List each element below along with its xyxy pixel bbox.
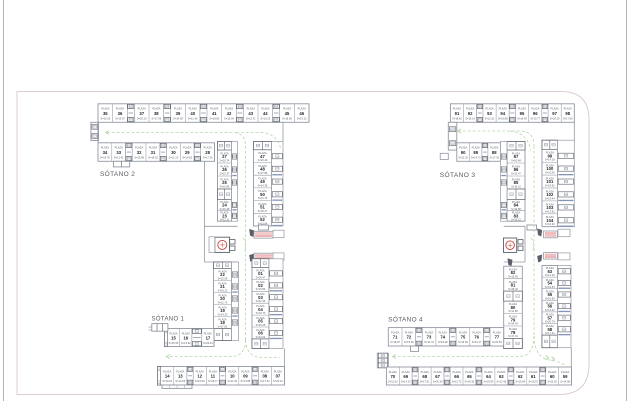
svg-text:S=14.68: S=14.68 <box>560 379 570 383</box>
svg-text:19: 19 <box>220 308 225 313</box>
svg-text:99: 99 <box>547 153 552 158</box>
svg-text:15: 15 <box>171 335 176 340</box>
svg-text:S=11.15: S=11.15 <box>169 156 179 160</box>
svg-text:S=15.69: S=15.69 <box>508 274 518 278</box>
svg-text:97: 97 <box>552 111 557 116</box>
svg-text:102: 102 <box>546 192 554 197</box>
svg-text:45: 45 <box>285 111 290 116</box>
svg-text:S=14.88: S=14.88 <box>241 379 251 383</box>
svg-text:29: 29 <box>185 150 190 155</box>
svg-text:11: 11 <box>211 374 216 379</box>
svg-text:S=20.14: S=20.14 <box>273 379 283 383</box>
svg-text:74: 74 <box>440 335 445 340</box>
svg-text:71: 71 <box>393 335 398 340</box>
svg-text:14: 14 <box>165 374 170 379</box>
svg-text:S=14.18: S=14.18 <box>545 158 555 162</box>
svg-text:89: 89 <box>473 150 478 155</box>
svg-text:S=16.90: S=16.90 <box>545 296 555 300</box>
svg-text:S=18.82: S=18.82 <box>209 117 219 121</box>
svg-text:S=15.84: S=15.84 <box>256 287 266 291</box>
svg-text:S=13.47: S=13.47 <box>511 171 521 175</box>
svg-text:13: 13 <box>178 374 183 379</box>
svg-text:S=15.29: S=15.29 <box>195 379 205 383</box>
svg-text:17: 17 <box>206 335 211 340</box>
svg-text:S=18.47: S=18.47 <box>256 275 266 279</box>
svg-text:S=15.89: S=15.89 <box>134 156 144 160</box>
svg-text:S=13.92: S=13.92 <box>181 341 191 345</box>
svg-text:57: 57 <box>547 315 552 320</box>
svg-text:S=17.91: S=17.91 <box>508 334 518 338</box>
svg-text:S=12.46: S=12.46 <box>496 379 506 383</box>
svg-text:16: 16 <box>183 335 188 340</box>
svg-text:SÓTANO 2: SÓTANO 2 <box>100 169 135 178</box>
svg-text:36: 36 <box>118 111 123 116</box>
svg-text:S=15.34: S=15.34 <box>224 117 234 121</box>
svg-text:49: 49 <box>260 179 265 184</box>
svg-text:32: 32 <box>137 150 142 155</box>
svg-text:S=19.83: S=19.83 <box>484 379 494 383</box>
svg-text:64: 64 <box>486 374 491 379</box>
svg-text:S=18.77: S=18.77 <box>208 379 218 383</box>
svg-text:60: 60 <box>550 374 555 379</box>
svg-text:98: 98 <box>565 111 570 116</box>
svg-text:33: 33 <box>116 150 121 155</box>
svg-text:S=12.71: S=12.71 <box>246 117 256 121</box>
svg-text:S=15.59: S=15.59 <box>218 276 228 280</box>
svg-text:93: 93 <box>487 111 492 116</box>
svg-text:21: 21 <box>220 284 225 289</box>
svg-text:37: 37 <box>139 111 144 116</box>
svg-text:22: 22 <box>220 272 225 277</box>
svg-text:S=14.43: S=14.43 <box>508 322 518 326</box>
svg-text:80: 80 <box>511 305 516 310</box>
svg-text:23: 23 <box>222 213 227 218</box>
svg-text:S=12.16: S=12.16 <box>545 273 555 277</box>
svg-text:S=13.12: S=13.12 <box>297 117 307 121</box>
svg-text:S=19.78: S=19.78 <box>100 156 110 160</box>
svg-text:72: 72 <box>406 335 411 340</box>
svg-text:47: 47 <box>260 154 265 159</box>
svg-text:90: 90 <box>461 150 466 155</box>
svg-text:S=18.92: S=18.92 <box>545 184 555 188</box>
svg-text:86: 86 <box>514 167 519 172</box>
svg-text:S=12.51: S=12.51 <box>485 117 495 121</box>
svg-text:S=11.80: S=11.80 <box>508 309 518 313</box>
svg-text:S=16.10: S=16.10 <box>511 184 521 188</box>
svg-text:12: 12 <box>197 374 202 379</box>
svg-text:69: 69 <box>403 374 408 379</box>
svg-text:66: 66 <box>454 374 459 379</box>
svg-text:S=20.44: S=20.44 <box>203 341 213 345</box>
svg-text:65: 65 <box>467 374 472 379</box>
svg-text:67: 67 <box>435 374 440 379</box>
svg-text:40: 40 <box>190 111 195 116</box>
svg-text:94: 94 <box>500 111 505 116</box>
svg-text:S=16.55: S=16.55 <box>169 341 179 345</box>
svg-text:S=19.73: S=19.73 <box>256 311 266 315</box>
svg-text:SÓTANO 3: SÓTANO 3 <box>440 170 476 179</box>
svg-text:78: 78 <box>511 330 516 335</box>
svg-text:07: 07 <box>276 374 281 379</box>
svg-text:S=18.32: S=18.32 <box>508 287 518 291</box>
svg-text:S=18.52: S=18.52 <box>148 156 158 160</box>
svg-text:S=20.49: S=20.49 <box>258 158 268 162</box>
svg-text:27: 27 <box>222 154 227 159</box>
svg-text:S=16.25: S=16.25 <box>256 323 266 327</box>
svg-text:S=17.61: S=17.61 <box>420 379 430 383</box>
svg-text:S=19.48: S=19.48 <box>220 207 230 211</box>
svg-text:91: 91 <box>455 111 460 116</box>
svg-text:96: 96 <box>533 111 538 116</box>
svg-text:92: 92 <box>468 111 473 116</box>
svg-text:SÓTANO 1: SÓTANO 1 <box>152 316 185 323</box>
svg-text:75: 75 <box>461 335 466 340</box>
svg-text:S=18.22: S=18.22 <box>218 288 228 292</box>
svg-text:S=12.21: S=12.21 <box>511 218 521 222</box>
svg-text:S=13.42: S=13.42 <box>545 308 555 312</box>
svg-text:09: 09 <box>243 374 248 379</box>
svg-text:24: 24 <box>222 203 227 208</box>
svg-text:S=14.13: S=14.13 <box>401 379 411 383</box>
svg-text:S=14.63: S=14.63 <box>182 156 192 160</box>
svg-text:S=18.62: S=18.62 <box>452 117 462 121</box>
svg-text:S=12.76: S=12.76 <box>424 340 434 344</box>
svg-text:S=18.57: S=18.57 <box>528 379 538 383</box>
svg-text:S=11.50: S=11.50 <box>388 379 398 383</box>
svg-text:S=11.75: S=11.75 <box>258 196 268 200</box>
svg-text:35: 35 <box>103 111 108 116</box>
svg-text:52: 52 <box>260 217 265 222</box>
svg-text:S=16.65: S=16.65 <box>458 340 468 344</box>
svg-text:S=15.39: S=15.39 <box>404 340 414 344</box>
svg-text:59: 59 <box>563 374 568 379</box>
svg-text:S=15.14: S=15.14 <box>465 117 475 121</box>
svg-text:S=16.30: S=16.30 <box>100 117 110 121</box>
svg-text:46: 46 <box>299 111 304 116</box>
svg-text:76: 76 <box>474 335 479 340</box>
svg-text:61: 61 <box>531 374 536 379</box>
svg-text:S=19.28: S=19.28 <box>438 340 448 344</box>
svg-text:S=17.31: S=17.31 <box>545 331 555 335</box>
svg-text:S=19.33: S=19.33 <box>545 222 555 226</box>
svg-text:S=12.41: S=12.41 <box>114 156 124 160</box>
svg-text:70: 70 <box>390 374 395 379</box>
svg-text:43: 43 <box>248 111 253 116</box>
svg-text:83: 83 <box>514 213 519 218</box>
svg-text:S=11.45: S=11.45 <box>188 117 198 121</box>
svg-text:28: 28 <box>205 150 210 155</box>
svg-text:S=17.81: S=17.81 <box>218 324 228 328</box>
svg-text:S=12.81: S=12.81 <box>545 209 555 213</box>
svg-text:S=17.51: S=17.51 <box>260 379 270 383</box>
svg-text:34: 34 <box>103 150 108 155</box>
svg-text:58: 58 <box>547 327 552 332</box>
svg-text:41: 41 <box>212 111 217 116</box>
svg-text:100: 100 <box>546 166 554 171</box>
svg-text:39: 39 <box>176 111 181 116</box>
svg-text:S=18.87: S=18.87 <box>390 340 400 344</box>
svg-text:S=13.77: S=13.77 <box>530 117 540 121</box>
svg-text:20: 20 <box>220 296 225 301</box>
svg-text:55: 55 <box>547 292 552 297</box>
svg-text:103: 103 <box>546 205 554 210</box>
svg-text:77: 77 <box>495 335 500 340</box>
svg-text:S=18.27: S=18.27 <box>258 209 268 213</box>
svg-text:S=16.85: S=16.85 <box>220 184 230 188</box>
svg-text:S=19.58: S=19.58 <box>511 207 521 211</box>
svg-text:18: 18 <box>220 320 225 325</box>
svg-text:56: 56 <box>547 304 552 309</box>
svg-text:S=15.94: S=15.94 <box>515 379 525 383</box>
svg-text:S=12.66: S=12.66 <box>175 379 185 383</box>
svg-text:S=11.70: S=11.70 <box>218 300 228 304</box>
svg-text:68: 68 <box>422 374 427 379</box>
svg-text:S=11.20: S=11.20 <box>547 379 557 383</box>
svg-text:48: 48 <box>260 166 265 171</box>
svg-text:S=13.37: S=13.37 <box>220 171 230 175</box>
svg-text:42: 42 <box>227 111 232 116</box>
svg-text:S=16.60: S=16.60 <box>282 117 292 121</box>
svg-text:S=13.62: S=13.62 <box>256 335 266 339</box>
svg-text:SÓTANO 4: SÓTANO 4 <box>388 315 423 324</box>
svg-text:85: 85 <box>514 180 519 185</box>
svg-text:54: 54 <box>547 281 552 286</box>
svg-text:S=14.38: S=14.38 <box>258 184 268 188</box>
svg-text:S=17.56: S=17.56 <box>151 117 161 121</box>
svg-text:S=20.29: S=20.29 <box>550 117 560 121</box>
svg-text:25: 25 <box>222 180 227 185</box>
svg-text:38: 38 <box>154 111 159 116</box>
svg-text:S=17.86: S=17.86 <box>258 171 268 175</box>
svg-text:S=17.36: S=17.36 <box>489 156 499 160</box>
svg-text:51: 51 <box>260 205 265 210</box>
svg-text:26: 26 <box>222 167 227 172</box>
svg-text:S=12.11: S=12.11 <box>220 218 230 222</box>
svg-text:104: 104 <box>546 218 554 223</box>
svg-text:S=14.93: S=14.93 <box>173 117 183 121</box>
svg-text:31: 31 <box>151 150 156 155</box>
svg-text:S=14.33: S=14.33 <box>218 312 228 316</box>
svg-text:S=20.74: S=20.74 <box>220 158 230 162</box>
svg-text:S=19.88: S=19.88 <box>498 117 508 121</box>
svg-text:63: 63 <box>499 374 504 379</box>
svg-text:S=16.35: S=16.35 <box>465 379 475 383</box>
svg-text:S=15.44: S=15.44 <box>545 196 555 200</box>
svg-text:S=20.24: S=20.24 <box>433 379 443 383</box>
svg-text:S=11.25: S=11.25 <box>458 156 468 160</box>
svg-text:101: 101 <box>546 179 554 184</box>
svg-text:S=19.53: S=19.53 <box>545 285 555 289</box>
svg-text:S=13.72: S=13.72 <box>452 379 462 383</box>
svg-text:73: 73 <box>427 335 432 340</box>
svg-text:S=20.54: S=20.54 <box>492 340 502 344</box>
svg-text:S=20.79: S=20.79 <box>545 320 555 324</box>
svg-text:S=13.67: S=13.67 <box>115 117 125 121</box>
svg-text:S=13.17: S=13.17 <box>472 340 482 344</box>
svg-text:88: 88 <box>492 150 497 155</box>
svg-text:S=12.36: S=12.36 <box>256 299 266 303</box>
svg-text:53: 53 <box>547 269 552 274</box>
svg-text:62: 62 <box>518 374 523 379</box>
svg-text:S=17.66: S=17.66 <box>563 117 573 121</box>
svg-text:30: 30 <box>171 150 176 155</box>
svg-text:08: 08 <box>262 374 267 379</box>
svg-text:81: 81 <box>511 283 516 288</box>
svg-text:87: 87 <box>514 154 519 159</box>
svg-text:S=17.26: S=17.26 <box>203 156 213 160</box>
svg-text:95: 95 <box>520 111 525 116</box>
svg-text:S=11.40: S=11.40 <box>228 379 238 383</box>
svg-text:44: 44 <box>263 111 268 116</box>
svg-text:S=11.55: S=11.55 <box>545 171 555 175</box>
svg-text:S=16.40: S=16.40 <box>517 117 527 121</box>
svg-text:S=19.18: S=19.18 <box>162 379 172 383</box>
svg-text:84: 84 <box>514 203 519 208</box>
svg-text:S=20.19: S=20.19 <box>137 117 147 121</box>
svg-text:S=19.23: S=19.23 <box>260 117 270 121</box>
svg-text:S=20.84: S=20.84 <box>511 158 521 162</box>
svg-text:S=14.73: S=14.73 <box>471 156 481 160</box>
svg-text:50: 50 <box>260 192 265 197</box>
svg-text:10: 10 <box>230 374 235 379</box>
